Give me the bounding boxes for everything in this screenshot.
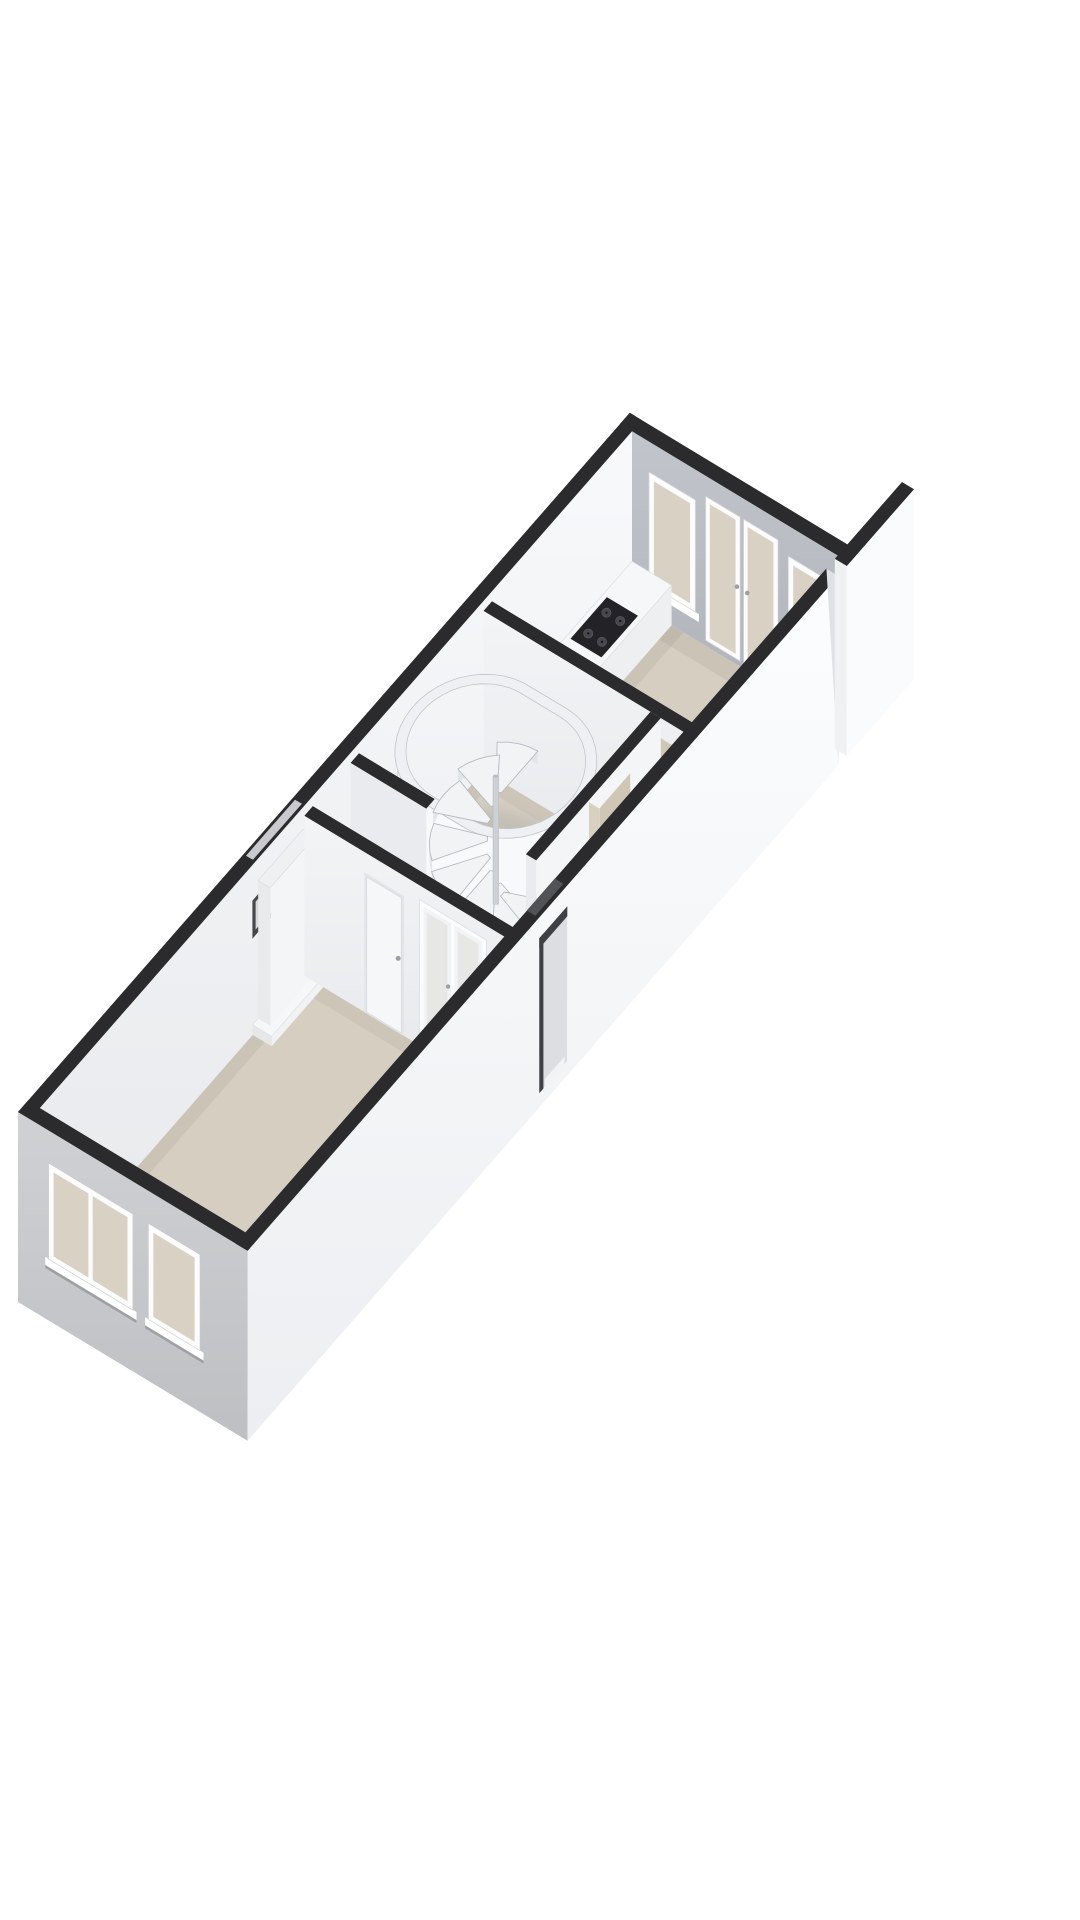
closet-door — [364, 872, 404, 1036]
floorplan-canvas — [0, 0, 1080, 1920]
floorplan-3d-render — [0, 0, 1080, 1920]
